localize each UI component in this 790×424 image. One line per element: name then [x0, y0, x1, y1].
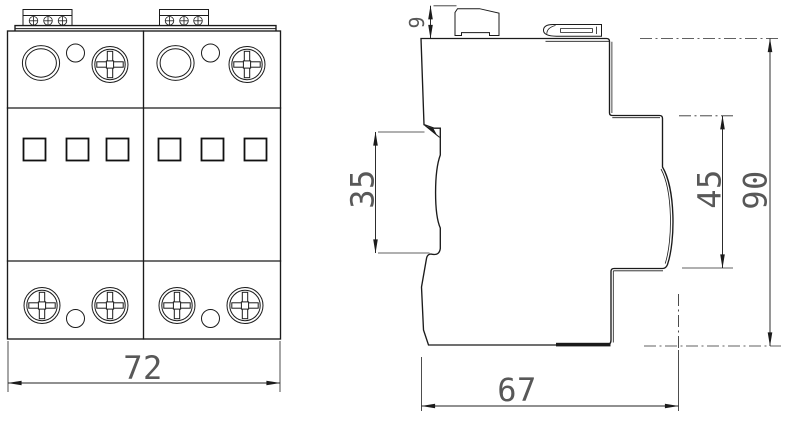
terminal-screw-icon [180, 17, 189, 26]
indicator-window [107, 139, 129, 161]
terminal-screw-icon [58, 17, 67, 26]
dim-terminal-9: 9 [405, 6, 457, 39]
terminal-screw-icon [165, 17, 174, 26]
indicator-window [159, 139, 181, 161]
din-clip-foot [556, 343, 611, 347]
retaining-clip [544, 25, 602, 37]
phillips-screw-icon [92, 288, 128, 324]
dim-label: 67 [497, 371, 537, 409]
front-view: 72 [8, 10, 281, 393]
phillips-screw-icon [227, 288, 263, 324]
phillips-screw-icon [92, 47, 128, 83]
terminal-screw-icon [29, 17, 38, 26]
technical-drawing: 72 9 [0, 0, 790, 424]
dim-rail-slot-35: 35 [344, 132, 430, 253]
indicator-window [245, 139, 267, 161]
drawing-sheet: 72 9 [0, 0, 790, 424]
indicator-window [24, 139, 46, 161]
dim-label: 35 [344, 169, 382, 209]
terminal-block-right [160, 10, 209, 26]
side-terminal-block [455, 9, 499, 36]
dim-label: 9 [405, 16, 429, 28]
indicator-window [67, 139, 89, 161]
phillips-screw-icon [24, 288, 60, 324]
dim-label: 90 [737, 170, 775, 210]
phillips-screw-icon [159, 288, 195, 324]
terminal-screw-icon [44, 17, 53, 26]
dim-label: 72 [123, 349, 163, 387]
indicator-window [202, 139, 224, 161]
side-view: 9 35 45 90 67 [344, 6, 782, 411]
terminal-block-left [23, 10, 72, 26]
dim-width-72: 72 [8, 341, 280, 392]
dim-label: 45 [691, 169, 729, 209]
dim-step-45: 45 [679, 116, 733, 268]
side-body-outline [421, 39, 673, 346]
terminal-screw-icon [194, 17, 203, 26]
phillips-screw-icon [229, 47, 265, 83]
